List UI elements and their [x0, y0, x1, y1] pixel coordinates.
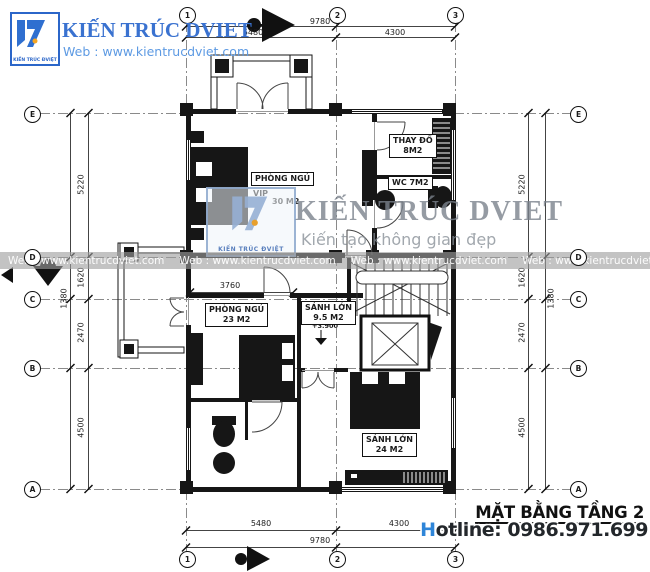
logo-caption: KIẾN TRÚC ĐVIỆT: [12, 58, 58, 63]
grid-bubble-row-a-right: A: [570, 481, 587, 498]
changing-area: 8M2: [403, 146, 422, 155]
room-label-wc: WC 7M2: [388, 176, 433, 190]
grid-lines: [40, 22, 570, 552]
grid-bubble-col-3-bottom: 3: [447, 551, 464, 568]
grid-bubble-row-c-right: C: [570, 291, 587, 308]
floor-plan-page: 1 2 3 1 2 3 E D C B A E D C B A 9780 548…: [0, 0, 650, 572]
hall-large-area: 24 M2: [376, 445, 403, 454]
north-arrow-bottom-icon: [235, 546, 270, 571]
dim-left-seg1: 5220: [77, 167, 86, 203]
grid-bubble-row-e-right: E: [570, 106, 587, 123]
grid-bubble-row-b-left: B: [24, 360, 41, 377]
room-label-hall-large: SẢNH LỚN 24 M2: [362, 433, 417, 457]
dimension-ticks: [67, 23, 550, 552]
dim-bottom-seg1: 5480: [239, 519, 283, 528]
watermark-logo-mark-icon: [226, 192, 276, 236]
watermark-band: Web : www.kientrucdviet.com Web : www.ki…: [0, 252, 650, 269]
company-logo: KIẾN TRÚC ĐVIỆT: [10, 12, 60, 66]
dim-left-seg3: 2470: [77, 315, 86, 351]
logo-mark-icon: [12, 16, 52, 52]
watermark-band-text: Web : www.kientrucdviet.com: [179, 255, 335, 267]
grid-bubble-row-b-right: B: [570, 360, 587, 377]
grid-bubble-col-2-top: 2: [329, 7, 346, 24]
grid-bubble-row-d-right: D: [570, 249, 587, 266]
room-label-changing: THAY ĐỒ 8M2: [389, 134, 437, 158]
hall-large-name: SẢNH LỚN: [366, 435, 413, 444]
dim-bottom-seg2: 4300: [377, 519, 421, 528]
watermark-band-text: Web : www.kientrucdviet.com: [351, 255, 507, 267]
dim-top-seg2: 4300: [373, 28, 417, 37]
room-label-hall-small: SẢNH LỚN 9.5 M2: [301, 301, 356, 325]
hotline-number[interactable]: Hotline: 0986.971.699: [420, 519, 648, 541]
grid-bubble-col-2-bottom: 2: [329, 551, 346, 568]
grid-bubble-row-c-left: C: [24, 291, 41, 308]
dim-left-aux: 1380: [60, 281, 69, 317]
grid-bubble-row-a-left: A: [24, 481, 41, 498]
dim-left-seg4: 4500: [77, 410, 86, 446]
brand-website-link[interactable]: Web : www.kientrucdviet.com: [63, 44, 249, 59]
brand-name: KIẾN TRÚC DVIET: [62, 18, 252, 43]
grid-bubble-row-e-left: E: [24, 106, 41, 123]
level-flag-icon: [315, 330, 327, 345]
bedroom2-area: 23 M2: [223, 315, 250, 324]
watermark-tagline: Kiến tạo không gian đẹp: [301, 230, 496, 249]
dim-right-seg3: 2470: [518, 315, 527, 351]
watermark-brand-name: KIẾN TRÚC DVIET: [295, 196, 563, 228]
dim-right-seg4: 4500: [518, 410, 527, 446]
elevator: [361, 316, 442, 370]
changing-name: THAY ĐỒ: [393, 136, 433, 145]
room-label-bedroom2: PHÒNG NGỦ 23 M2: [205, 303, 268, 327]
dim-bottom-overall: 9780: [298, 536, 342, 545]
dimension-lines: [71, 27, 546, 548]
hall-small-area: 9.5 M2: [313, 313, 343, 322]
bedroom2-name: PHÒNG NGỦ: [209, 305, 264, 314]
grid-bubble-col-1-bottom: 1: [179, 551, 196, 568]
dim-right-aux: 1380: [547, 281, 556, 317]
room-label-vip-bedroom: PHÒNG NGỦ: [251, 172, 314, 186]
edge-marker-icon: [1, 267, 13, 283]
grid-bubble-row-d-left: D: [24, 249, 41, 266]
grid-bubble-col-3-top: 3: [447, 7, 464, 24]
watermark-logo: KIẾN TRÚC ĐVIỆT: [206, 187, 296, 257]
dim-bedroom-width: 3760: [208, 281, 252, 290]
hall-small-name: SẢNH LỚN: [305, 303, 352, 312]
